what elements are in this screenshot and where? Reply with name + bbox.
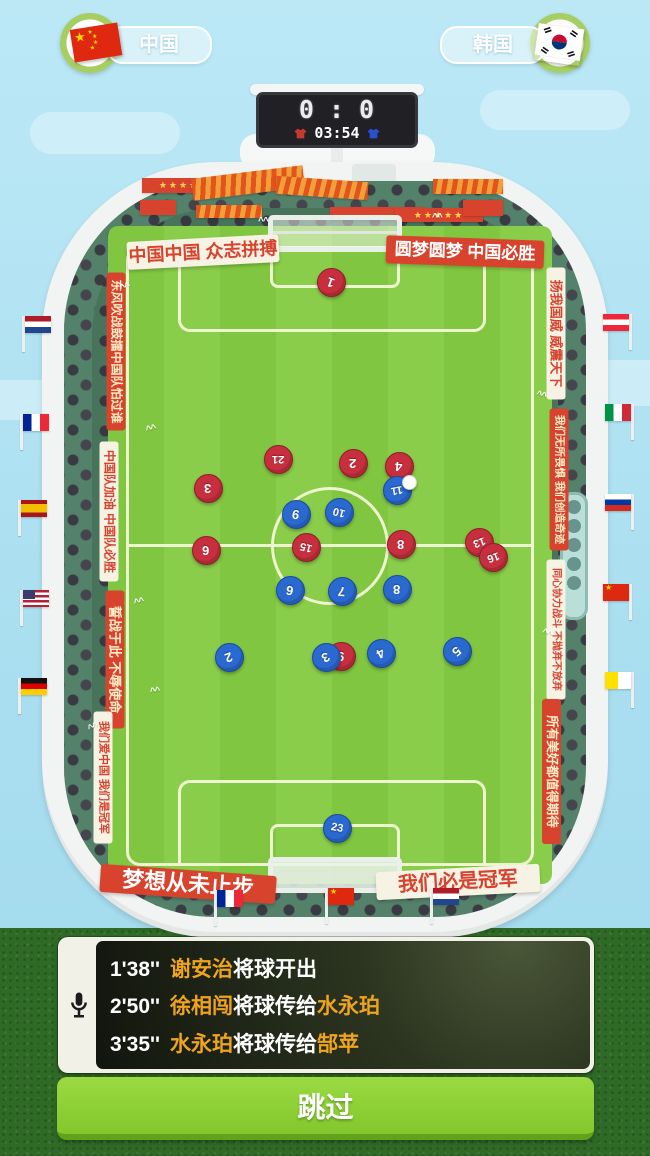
stand-streamer bbox=[196, 205, 262, 218]
player-token-red-6: 6 bbox=[192, 536, 221, 565]
player-number: 2 bbox=[223, 649, 235, 666]
flag-pole bbox=[629, 584, 632, 620]
match-time: 03:54 bbox=[314, 125, 359, 141]
flag-cloth-germany bbox=[21, 678, 47, 695]
player-name: 水永珀 bbox=[170, 1033, 233, 1056]
player-number: 7 bbox=[338, 583, 347, 599]
away-jersey-icon bbox=[367, 128, 380, 139]
player-token-blue-6: 6 bbox=[276, 576, 305, 605]
player-name: 水永珀 bbox=[317, 995, 380, 1018]
soccer-ball bbox=[402, 475, 417, 490]
player-number: 4 bbox=[374, 645, 388, 662]
flag-china: ★ bbox=[325, 888, 357, 924]
player-number: 8 bbox=[397, 537, 404, 552]
flag-netherlands bbox=[430, 888, 462, 924]
flag-cloth-france bbox=[217, 890, 243, 907]
top-goal bbox=[268, 215, 402, 252]
player-token-red-2: 2 bbox=[339, 449, 368, 478]
commentary-line: 3'35''水永珀将球传给郜苹 bbox=[110, 1028, 590, 1058]
flag-pole bbox=[629, 314, 632, 350]
player-number: 5 bbox=[449, 643, 464, 659]
score-separator: : bbox=[329, 95, 345, 125]
player-token-blue-23: 23 bbox=[323, 814, 352, 843]
flag-pole bbox=[631, 672, 634, 708]
banner-right-2: 我们无所畏惧 我们创造奇迹 bbox=[550, 409, 569, 551]
commentary-timestamp: 2'50'' bbox=[110, 995, 160, 1018]
away-team-name: 韩国 bbox=[440, 26, 546, 64]
player-number: 8 bbox=[393, 582, 400, 597]
cheer-hands: ^^ bbox=[258, 216, 268, 227]
flag-netherlands bbox=[22, 316, 54, 352]
flag-italy bbox=[602, 404, 634, 440]
flag-cloth-spain bbox=[21, 500, 47, 517]
south-korea-flag-icon bbox=[534, 23, 585, 66]
flag-cloth-china: ★ bbox=[603, 584, 629, 601]
cheer-hands: ^^ bbox=[432, 212, 442, 223]
player-token-blue-9: 9 bbox=[282, 500, 311, 529]
stand-flag bbox=[140, 200, 176, 215]
banner-left-1: 东风吹战鼓擂中国队怕过谁 bbox=[107, 273, 126, 431]
stand-streamer bbox=[433, 179, 503, 194]
flag-germany bbox=[18, 678, 50, 714]
player-number: 21 bbox=[272, 453, 284, 465]
match-clock: 03:54 bbox=[259, 125, 415, 141]
player-token-red-16: 16 bbox=[479, 543, 508, 572]
flag-cloth-netherlands bbox=[25, 316, 51, 333]
player-number: 6 bbox=[285, 582, 295, 598]
player-token-blue-7: 7 bbox=[328, 577, 357, 606]
player-number: 10 bbox=[332, 505, 347, 520]
flag-cloth-yellow-white bbox=[605, 672, 631, 689]
flag-cloth-austria bbox=[603, 314, 629, 331]
flag-austria bbox=[600, 314, 632, 350]
flag-cloth-russia bbox=[605, 494, 631, 511]
flag-spain bbox=[18, 500, 50, 536]
player-number: 4 bbox=[395, 458, 404, 474]
banner-right-1: 扬我国威 威震天下 bbox=[547, 268, 566, 400]
banner-left-2: 中国队加油 中国队必胜 bbox=[100, 442, 119, 582]
commentary-text: 将球传给 bbox=[233, 995, 317, 1018]
player-token-red-21: 21 bbox=[264, 445, 293, 474]
player-number: 3 bbox=[204, 481, 211, 496]
home-jersey-icon bbox=[294, 128, 307, 139]
player-name: 郜苹 bbox=[317, 1033, 359, 1056]
match-replay-screen: 中国 ★ ★ ★ ★ ★ 韩国 0 bbox=[0, 0, 650, 1156]
banner-left-3: 誓战于此 不辱使命 bbox=[106, 591, 125, 729]
flag-yellow-white bbox=[602, 672, 634, 708]
commentary-panel: 1'38''谢安治将球开出2'50''徐相闯将球传给水永珀3'35''水永珀将球… bbox=[58, 937, 594, 1073]
player-number: 23 bbox=[330, 821, 344, 835]
player-token-red-8: 8 bbox=[387, 530, 416, 559]
player-token-red-1: 1 bbox=[317, 268, 346, 297]
commentary-line: 2'50''徐相闯将球传给水永珀 bbox=[110, 990, 590, 1020]
flag-cloth-china: ★ bbox=[328, 888, 354, 905]
commentary-text: 将球传给 bbox=[233, 1033, 317, 1056]
flag-cloth-france bbox=[23, 414, 49, 431]
home-score: 0 bbox=[299, 95, 315, 125]
cloud bbox=[480, 90, 630, 130]
skip-button[interactable]: 跳过 bbox=[57, 1077, 594, 1140]
flag-usa bbox=[20, 590, 52, 626]
home-team-name: 中国 bbox=[106, 26, 212, 64]
commentary-timestamp: 3'35'' bbox=[110, 1033, 160, 1056]
player-number: 9 bbox=[291, 506, 301, 522]
player-name: 谢安治 bbox=[170, 958, 233, 981]
flag-russia bbox=[602, 494, 634, 530]
stand-flag bbox=[463, 200, 503, 216]
player-name: 徐相闯 bbox=[170, 995, 233, 1018]
player-number: 15 bbox=[299, 540, 314, 555]
player-token-blue-8: 8 bbox=[383, 575, 412, 604]
microphone-tab bbox=[62, 941, 96, 1069]
player-number: 16 bbox=[485, 549, 501, 564]
commentary-log: 1'38''谢安治将球开出2'50''徐相闯将球传给水永珀3'35''水永珀将球… bbox=[96, 941, 590, 1069]
flag-cloth-italy bbox=[605, 404, 631, 421]
cheer-hands: ^^ bbox=[149, 685, 160, 698]
flag-pole bbox=[631, 494, 634, 530]
cloud bbox=[30, 112, 180, 154]
player-number: 2 bbox=[349, 456, 356, 471]
player-token-blue-10: 10 bbox=[325, 498, 354, 527]
flag-france bbox=[214, 890, 246, 926]
player-token-red-3: 3 bbox=[194, 474, 223, 503]
player-number: 3 bbox=[319, 649, 333, 666]
banner-right-4: 所有美好都值得期待 bbox=[542, 699, 561, 844]
commentary-text: 将球开出 bbox=[233, 958, 317, 981]
score-display: 0 : 0 bbox=[259, 95, 415, 125]
flag-france bbox=[20, 414, 52, 450]
player-token-blue-2: 2 bbox=[215, 643, 244, 672]
commentary-timestamp: 1'38'' bbox=[110, 958, 160, 981]
player-token-blue-5: 5 bbox=[443, 637, 472, 666]
player-number: 1 bbox=[325, 274, 337, 291]
player-token-red-15: 15 bbox=[292, 533, 321, 562]
scoreboard: 0 : 0 03:54 bbox=[256, 92, 418, 148]
player-token-blue-4: 4 bbox=[367, 639, 396, 668]
player-token-blue-3: 3 bbox=[312, 643, 341, 672]
commentary-line: 1'38''谢安治将球开出 bbox=[110, 953, 590, 983]
away-score: 0 bbox=[359, 95, 375, 125]
banner-top-right: 圆梦圆梦 中国必胜 bbox=[386, 235, 545, 268]
microphone-icon bbox=[69, 990, 89, 1020]
flag-cloth-netherlands bbox=[433, 888, 459, 905]
flag-cloth-usa bbox=[23, 590, 49, 607]
flag-pole bbox=[631, 404, 634, 440]
player-number: 6 bbox=[202, 543, 209, 558]
flag-china: ★ bbox=[600, 584, 632, 620]
